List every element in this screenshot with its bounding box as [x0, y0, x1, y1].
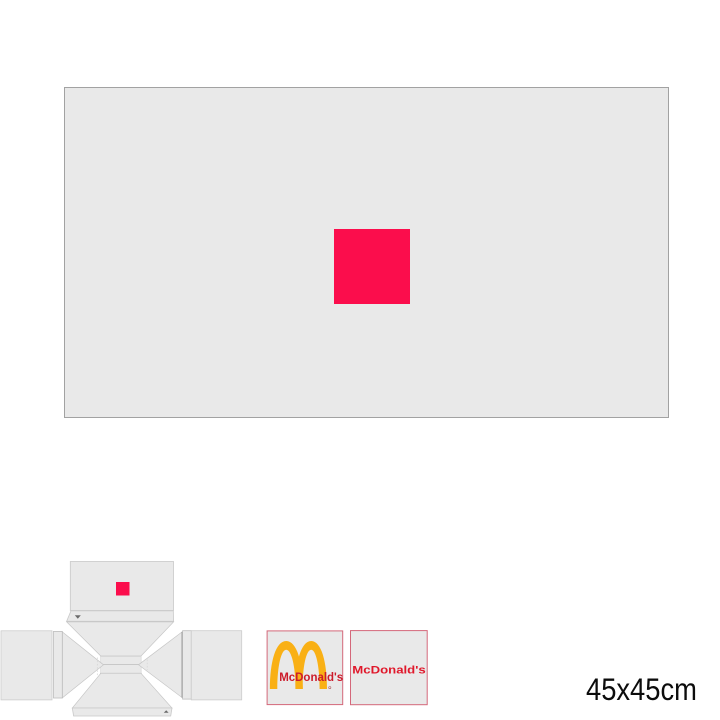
svg-text:McDonald's: McDonald's: [352, 664, 425, 676]
svg-text:McDonald's: McDonald's: [279, 670, 343, 684]
